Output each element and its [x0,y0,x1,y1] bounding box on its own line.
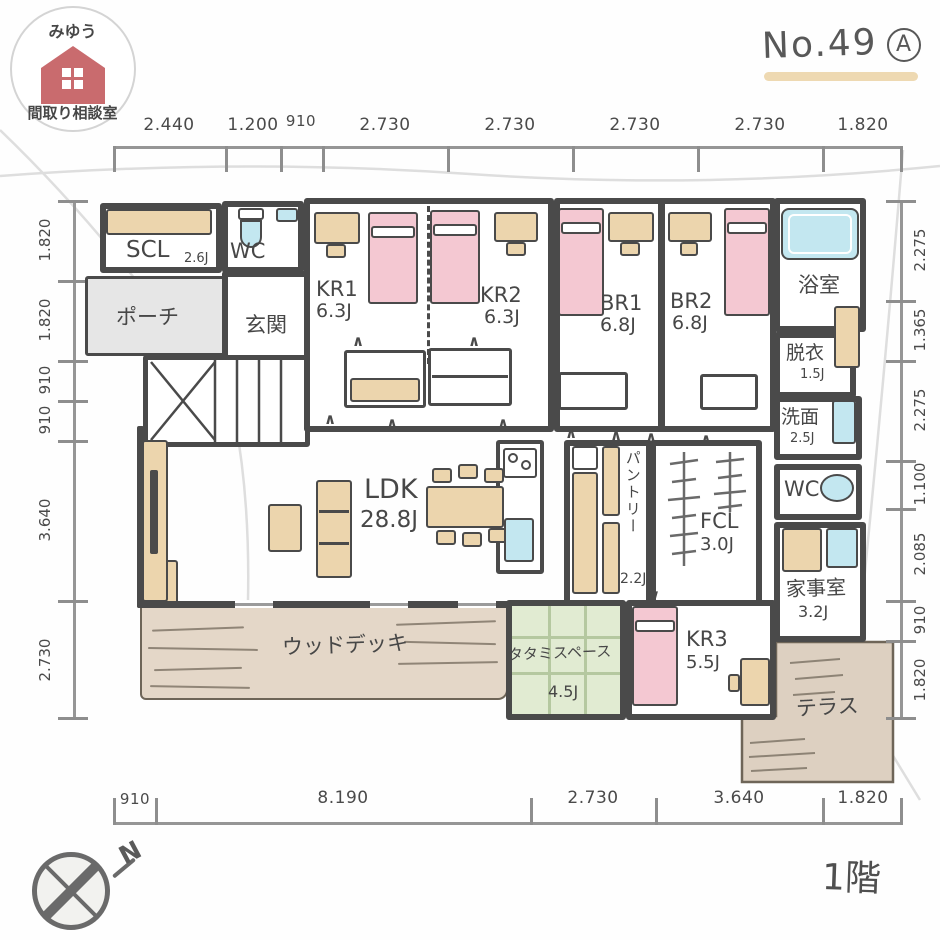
dim-label: 1.100 [911,456,929,512]
wc2-toilet-icon [820,474,854,502]
porch-label: ポーチ [116,306,179,328]
dim-tick [113,146,116,172]
house-window-pane [74,80,83,89]
dim-label: 2.085 [911,526,929,582]
br-divider-wall [658,200,665,430]
door-mark: ∧ [352,332,364,350]
bath-label: 浴室 [798,274,840,296]
dim-tick [530,798,533,825]
dim-label: 3.640 [36,492,54,548]
kr2-chair [506,242,526,256]
kr2-size: 6.3J [484,308,520,328]
dim-tick [655,798,658,825]
scl-size: 2.6J [184,252,209,266]
dining-chair [462,532,482,547]
logo-top-text: みゆう [12,24,133,41]
dim-label: 3.640 [713,788,764,808]
dim-label: 1.365 [911,302,929,358]
br1-label: BR1 [600,292,642,314]
door-mark: ∧ [468,332,480,350]
ldk-label: LDK [364,476,418,504]
dim-tick [58,440,88,443]
dim-label: 2.440 [143,115,194,135]
sliding-door [235,601,273,608]
door-mark: ∨ [648,586,660,604]
dim-line-bottom [113,822,903,825]
house-window-pane [62,80,71,89]
pantry-box [572,446,598,470]
dim-tick [886,200,916,203]
dim-tick [58,280,88,283]
kr1-size: 6.3J [316,302,352,322]
dim-tick [58,400,88,403]
toilet-tank-icon [238,208,264,220]
dim-tick [572,146,575,172]
dim-tick [58,200,88,203]
dim-line-top [113,146,903,149]
door-mark: ∧ [497,414,509,432]
datsui-cabinet [834,306,860,368]
dim-tick [900,146,903,172]
dim-label: 1.820 [36,212,54,268]
kr1-label: KR1 [316,278,358,300]
fcl-size: 3.0J [700,536,734,555]
pantry-size: 2.2J [620,572,646,587]
kaji-washer-icon [826,528,858,568]
kr2-closet-shelfline [432,375,508,378]
dim-tick [822,798,825,825]
logo-bottom-text: 間取り相談室 [12,106,133,122]
senmen-size: 2.5J [790,432,815,446]
wc2-label: WC [784,478,819,500]
dim-label: 1.820 [36,292,54,348]
fcl-label: FCL [700,510,738,532]
dim-tick [822,146,825,172]
dim-tick [447,146,450,172]
br2-desk [668,212,712,242]
kr3-chair [728,674,740,692]
dim-label: 2.730 [567,788,618,808]
ldk-bottom-wall [137,601,512,608]
dim-label: 910 [120,790,150,808]
br2-label: BR2 [670,290,712,312]
floor-label: 1階 [821,859,881,899]
dim-label: 1.820 [911,652,929,708]
kr3-size: 5.5J [686,654,720,673]
plan-number: No.49 A [762,26,921,64]
kaji-desk [782,528,822,572]
dining-chair [432,468,452,483]
dim-tick [58,360,88,363]
br1-desk [608,212,654,242]
dim-tick [322,146,325,172]
dim-label: 1.820 [837,788,888,808]
pantry-shelf [602,522,620,594]
door-mark: ∧ [700,430,712,448]
scl-shelf [106,209,212,235]
door-mark: ∧ [565,424,577,442]
dim-label: 2.275 [911,222,929,278]
kr3-label: KR3 [686,628,728,650]
kr1-chair [326,244,346,258]
sofa-seam [319,542,349,545]
dim-label: 1.820 [837,115,888,135]
dim-tick [58,717,88,720]
stove-burner [508,453,518,463]
dim-label: 2.730 [36,632,54,688]
kr1-closet-shelf [350,378,420,402]
entrance-label: 玄関 [245,314,287,336]
pantry-shelf [572,472,598,594]
senmen-sink-icon [832,400,856,444]
floor-cushion [268,504,302,552]
dining-chair [436,530,456,545]
dim-label: 910 [286,112,316,130]
dining-table [426,486,504,528]
plan-number-underline [764,72,918,81]
senmen-label: 洗面 [781,408,819,428]
kr2-desk [494,212,538,242]
br1-size: 6.8J [600,316,636,336]
dim-tick [697,146,700,172]
dim-tick [225,146,228,172]
dim-label: 910 [36,392,54,448]
scl-label: SCL [126,238,169,262]
tatami-grid [512,672,620,675]
datsui-label: 脱衣 [786,344,824,364]
dim-tick [58,600,88,603]
kr2-label: KR2 [480,284,522,306]
kaji-size: 3.2J [798,604,828,621]
dim-label: 910 [911,592,929,648]
dining-chair [458,464,478,479]
br2-chair [680,242,698,256]
br2-closet [700,374,758,410]
dining-chair [484,468,504,483]
sliding-door [370,601,408,608]
kr1-pillow [371,226,415,238]
dim-label: 2.730 [734,115,785,135]
terrace-label: テラス [795,694,859,719]
pantry-shelf [602,446,620,516]
tatami-size: 4.5J [548,684,578,701]
kaji-label: 家事室 [786,577,847,600]
dim-line-left [73,200,76,720]
logo: みゆう 間取り相談室 [10,6,136,132]
kr2-pillow [433,224,477,236]
dim-tick [886,360,916,363]
ldk-size: 28.8J [360,508,418,532]
bathtub-inner-line [788,214,852,254]
dim-tick [155,798,158,825]
wc1-label: WC [230,240,265,262]
door-mark: ∧ [610,426,622,444]
tv-icon [150,470,158,554]
stove-burner [521,460,531,470]
kitchen-sink-icon [504,518,534,562]
br2-size: 6.8J [672,314,708,334]
datsui-size: 1.5J [800,368,825,382]
dim-label: 2.275 [911,382,929,438]
stove-icon [503,448,537,478]
wc1-sink-icon [276,208,298,222]
dim-label: 2.730 [609,115,660,135]
plan-variant-badge: A [887,28,921,62]
kr3-desk [740,658,770,706]
plan-no-text: No.49 [761,24,878,66]
sliding-door [458,601,496,608]
stairs-steps [149,360,304,442]
dim-tick [113,798,116,825]
deck-label: ウッドデッキ [282,632,409,658]
tatami-grid [512,636,620,639]
kr1-desk [314,212,360,244]
dim-tick [886,717,916,720]
br1-chair [620,242,640,256]
dim-label: 2.730 [484,115,535,135]
house-icon [41,46,105,104]
floorplan-canvas: みゆう 間取り相談室 No.49 A 2.440 1.200 910 2.730… [0,0,940,940]
dim-tick [280,146,283,172]
pantry-label: パントリー [624,450,640,535]
house-window-pane [62,68,71,77]
dim-label: 2.730 [359,115,410,135]
br2-pillow [727,222,767,234]
tatami-label: タタミスペース [508,644,612,663]
compass: N [32,840,152,940]
br1-pillow [561,222,601,234]
dim-tick [900,798,903,825]
house-window-pane [74,68,83,77]
compass-needle [37,857,105,925]
kr3-pillow [635,620,675,632]
sofa [316,480,352,578]
door-mark: ∧ [324,410,336,428]
sofa-seam [319,510,349,513]
dim-label: 1.200 [227,115,278,135]
door-mark: ∧ [645,428,657,446]
br1-closet [558,372,628,410]
dim-label: 8.190 [317,788,368,808]
compass-north-label: N [115,837,146,870]
door-mark: ∧ [386,414,398,432]
